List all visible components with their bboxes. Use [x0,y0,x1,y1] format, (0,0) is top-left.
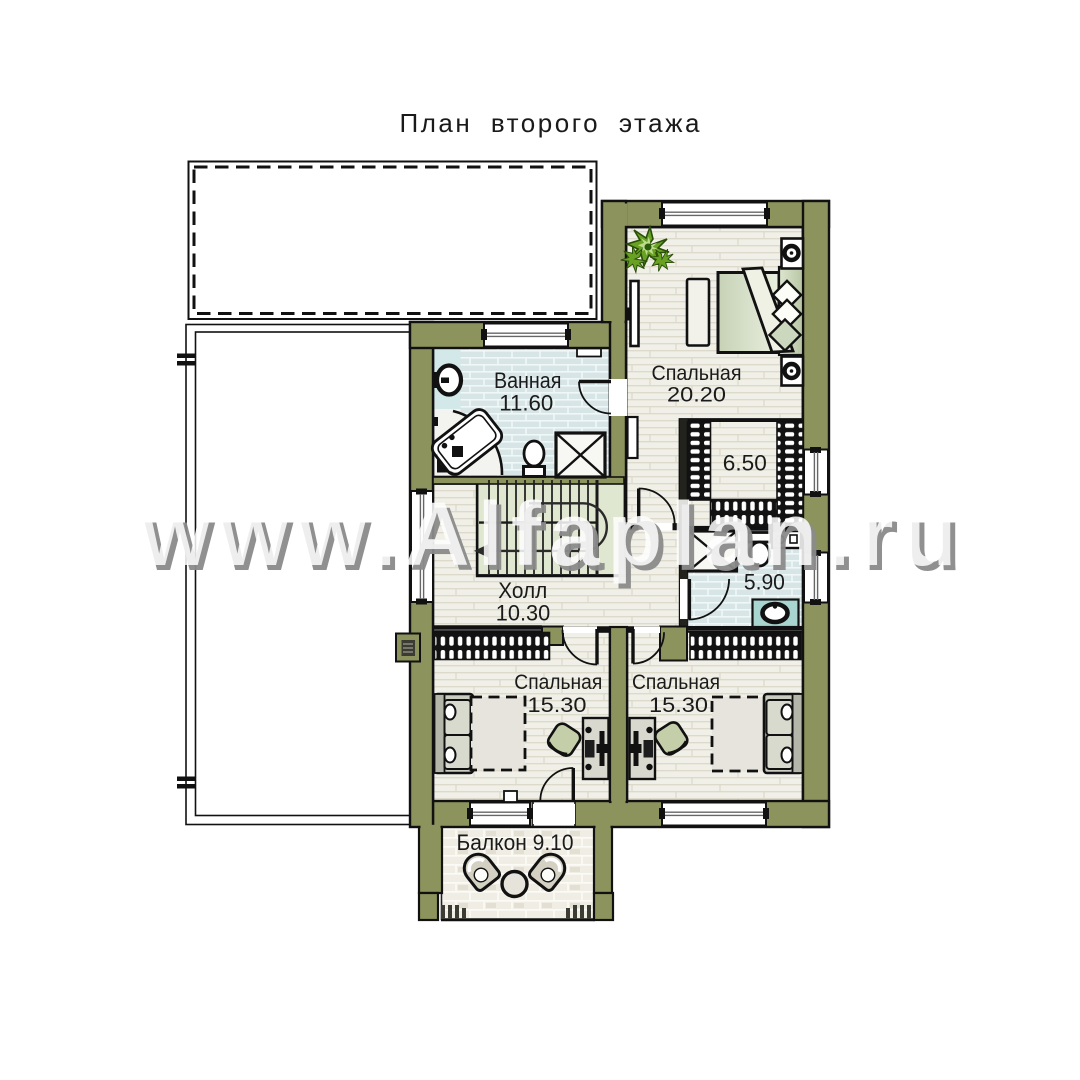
svg-text:План второго этажа: План второго этажа [400,108,701,138]
svg-text:15.30: 15.30 [528,693,587,717]
svg-text:10.30: 10.30 [496,601,551,626]
svg-text:6.50: 6.50 [723,450,767,475]
svg-text:Спальная: Спальная [632,670,720,694]
svg-text:20.20: 20.20 [667,383,726,407]
svg-text:www.Alfaplan.ru: www.Alfaplan.ru [139,485,965,585]
svg-text:15.30: 15.30 [649,693,708,717]
svg-text:Спальная: Спальная [652,361,742,385]
svg-text:Спальная: Спальная [514,670,602,694]
svg-text:Ванная: Ванная [494,368,562,393]
svg-text:11.60: 11.60 [499,391,553,416]
svg-text:Балкон 9.10: Балкон 9.10 [457,830,574,855]
